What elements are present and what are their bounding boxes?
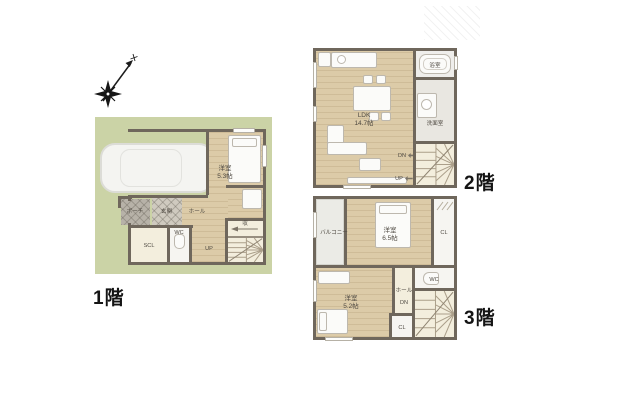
room-label-wc-1f: WC [172,229,186,236]
pillow [232,138,257,147]
desk [318,271,350,284]
coffee-table [359,158,381,171]
wall [228,236,263,238]
room-label-genkan: 玄関 [156,208,176,215]
window-mark [313,212,317,238]
wall [226,185,263,188]
wall [313,48,457,51]
room-label-bedroom-52: 洋室5.2帖 [337,294,366,310]
wall [313,196,457,199]
room-label-porch: ポーチ [125,208,145,215]
room-label-closet-upper: CL [438,229,450,236]
window-mark [454,56,458,70]
wall [389,313,392,340]
toilet [174,234,185,249]
car-cabin [120,149,182,187]
wall [128,262,266,265]
wall [454,196,457,340]
room-label-wc-3f: WC [423,276,444,283]
label-up-2f: UP [393,175,404,182]
wall [412,288,457,291]
chair [363,75,373,84]
floor-title-1f: 1階 [93,283,125,310]
window-mark [325,337,353,341]
wall [128,195,208,198]
cabinet [242,189,262,209]
floorplan-3f: バルコニー 洋室6.5帖 CL WC ホール DN CL 洋室5.2帖 [313,196,457,340]
hanger-marks-icon [435,200,453,212]
wall [313,265,347,268]
floorplan-image: 洋室5.3帖 ポーチ 玄関 ホール SCL WC UP 収 [0,0,640,411]
window-mark [313,62,317,88]
label-storage-1f: 収 [239,220,251,227]
wall [416,77,457,80]
room-label-ldk: LDK14.7帖 [352,111,376,127]
room-label-hall-3f: ホール [396,287,411,294]
room-label-closet-lower: CL [396,324,408,331]
window-mark [313,106,317,122]
room-label-bedroom-65: 洋室6.5帖 [376,226,405,242]
stairs-3f [415,291,454,337]
floorplan-1f: 洋室5.3帖 ポーチ 玄関 ホール SCL WC UP 収 [95,117,272,274]
pillow [379,205,407,214]
room-label-hall-1f: ホール [187,208,207,215]
wall [431,196,434,268]
up-arrow-icon [405,176,413,181]
wall [416,141,457,144]
kitchen-sink [337,55,346,64]
wall [413,48,416,188]
window-mark [343,185,371,189]
sofa [327,142,367,155]
chair [376,75,386,84]
stairs-2f [416,144,454,185]
window-mark [262,145,267,167]
compass-icon [92,50,140,114]
wall [118,196,121,208]
label-dn-2f: DN [396,152,407,159]
floorplan-2f: LDK14.7帖 浴室 洗面室 DN UP [313,48,457,188]
dining-table [353,86,391,111]
wall [225,218,228,262]
wall [189,225,192,262]
wall [167,225,170,262]
hatch-void-area [424,6,480,40]
wall [313,185,457,188]
label-up-1f: UP [202,245,217,252]
wall [344,265,457,268]
wall [130,225,193,228]
label-dn-3f: DN [398,299,409,306]
stairs-1f [228,238,263,262]
floor-title-2f: 2階 [464,168,496,195]
room-label-bedroom-1f: 洋室5.3帖 [212,164,238,180]
wall [128,223,131,265]
room-label-bath: 浴室 [422,62,448,69]
room-label-balcony: バルコニー [320,229,340,236]
wall [206,130,209,195]
floor-title-3f: 3階 [464,303,496,330]
window-mark [233,128,255,133]
room-label-scl: SCL [138,242,160,249]
wall [389,313,415,316]
fridge [318,52,331,67]
wall [392,268,395,316]
window-mark [313,280,317,302]
storage-arrow-icon [231,226,259,232]
room-label-washroom: 洗面室 [422,120,448,127]
car [100,143,214,193]
vanity-sink [421,99,432,110]
pillow [319,312,327,331]
chair [381,112,391,121]
